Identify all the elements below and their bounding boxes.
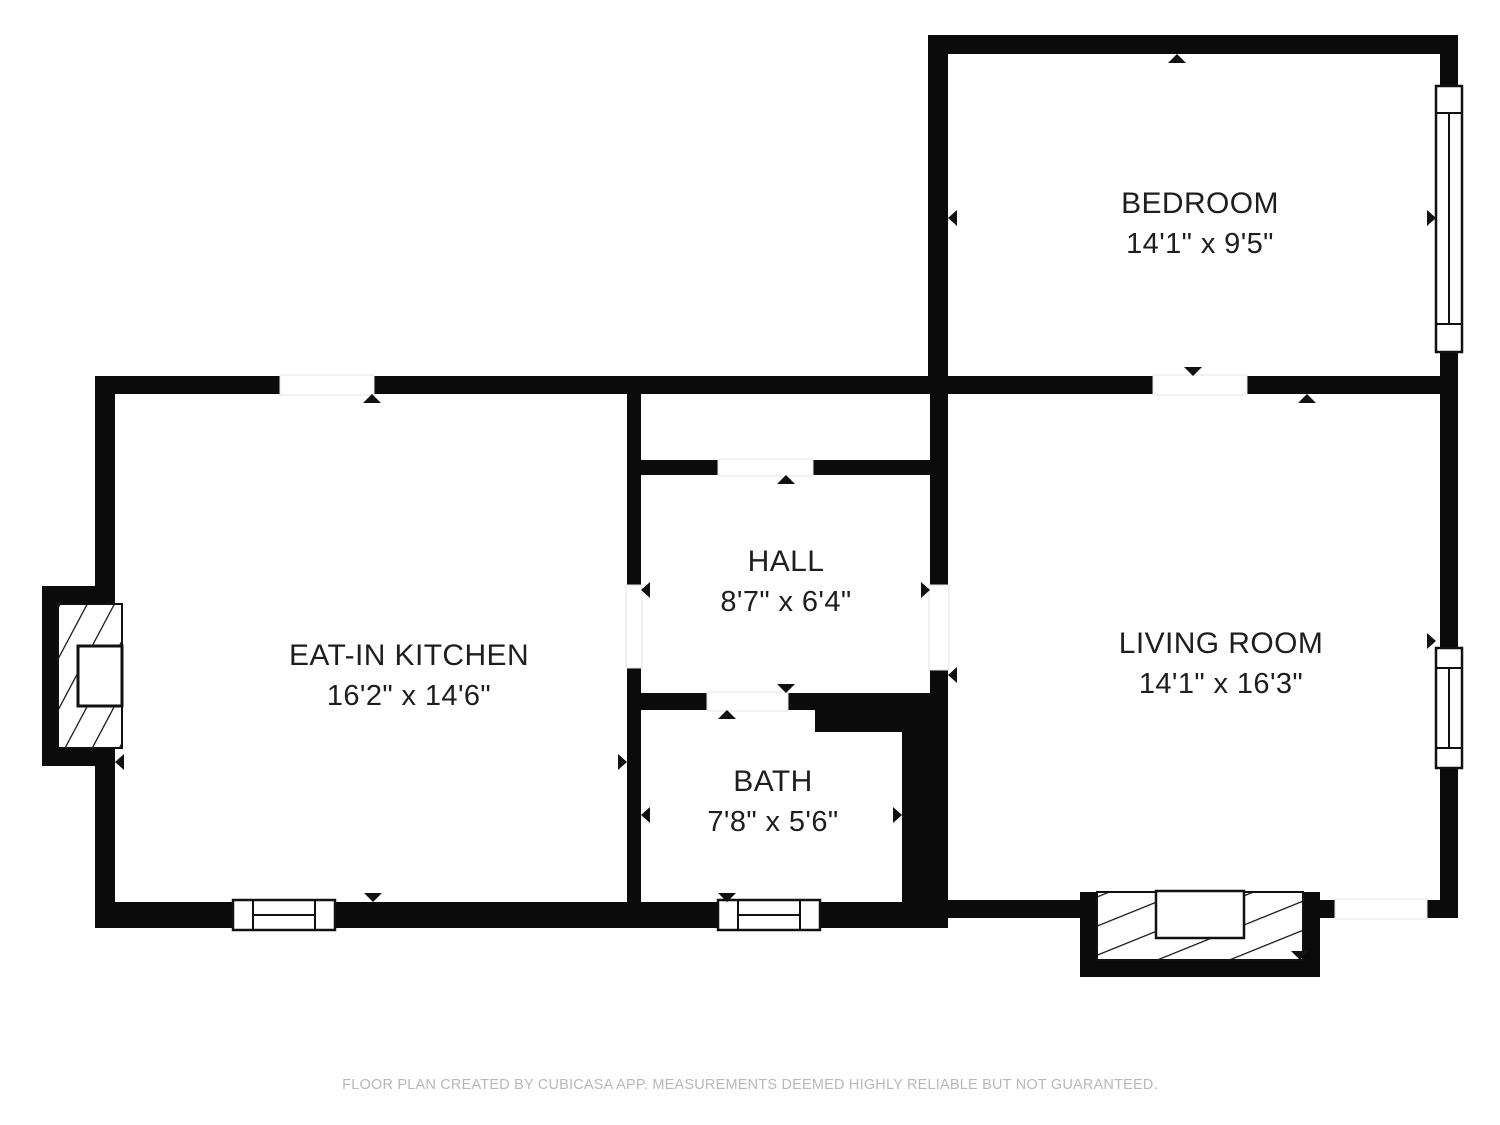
footer-disclaimer: FLOOR PLAN CREATED BY CUBICASA APP. MEAS… — [0, 1077, 1500, 1093]
room-label-eat-in-kitchen: EAT-IN KITCHEN 16'2" x 14'6" — [289, 636, 529, 716]
wall-hall-top — [627, 460, 718, 475]
wall-bedroom-left — [928, 35, 948, 394]
measure-arrow-icon — [893, 807, 902, 823]
room-dimensions: 8'7" x 6'4" — [720, 582, 851, 622]
room-label-living-room: LIVING ROOM 14'1" x 16'3" — [1119, 624, 1323, 704]
wall-hall-top — [813, 460, 948, 475]
room-name: LIVING ROOM — [1119, 624, 1323, 664]
measure-arrow-icon — [1168, 54, 1186, 63]
door-opening-hall-kitchen — [626, 585, 642, 668]
window-kitchen — [233, 900, 335, 930]
door-opening-closet — [718, 459, 813, 476]
measure-arrow-icon — [641, 807, 650, 823]
wall-kitchen-hall — [627, 394, 641, 585]
wall-main-horizontal — [95, 376, 280, 394]
floor-plan-page: BEDROOM 14'1" x 9'5" EAT-IN KITCHEN 16'2… — [0, 0, 1500, 1125]
measure-arrow-icon — [115, 754, 124, 770]
door-opening-hall-living — [929, 585, 949, 670]
wall-bath-living — [902, 710, 948, 928]
measure-arrow-icon — [1427, 633, 1436, 649]
wall-main-horizontal — [374, 376, 1153, 394]
wall-hall-bottom — [627, 693, 707, 710]
wall-living-bottom — [1427, 900, 1458, 918]
measure-arrow-icon — [1427, 210, 1436, 226]
window-living — [1436, 648, 1462, 768]
room-dimensions: 16'2" x 14'6" — [289, 676, 529, 716]
room-dimensions: 14'1" x 9'5" — [1121, 224, 1279, 264]
wall-hall-living — [930, 670, 948, 693]
wall-main-horizontal — [1247, 376, 1458, 394]
wall-chimney — [42, 586, 58, 766]
wall-hall-bottom — [788, 693, 948, 710]
wall-living-bottom — [902, 900, 1097, 918]
chimney-firebox — [78, 646, 122, 706]
door-opening-bedroom — [1153, 375, 1247, 395]
measure-arrow-icon — [948, 210, 957, 226]
door-opening-front — [1335, 899, 1427, 919]
room-label-bedroom: BEDROOM 14'1" x 9'5" — [1121, 184, 1279, 264]
wall-chimney — [42, 748, 115, 766]
wall-kitchen-left — [95, 394, 115, 588]
window-bedroom — [1436, 86, 1462, 352]
room-dimensions: 7'8" x 5'6" — [707, 802, 838, 842]
room-label-bath: BATH 7'8" x 5'6" — [707, 762, 838, 842]
door-opening-bath — [707, 692, 788, 711]
chimney — [58, 604, 122, 748]
room-label-hall: HALL 8'7" x 6'4" — [720, 542, 851, 622]
room-name: BEDROOM — [1121, 184, 1279, 224]
measure-arrow-icon — [364, 893, 382, 902]
wall-hall-living — [930, 394, 948, 585]
room-name: BATH — [707, 762, 838, 802]
room-name: EAT-IN KITCHEN — [289, 636, 529, 676]
entry-steps — [1097, 891, 1303, 960]
room-name: HALL — [720, 542, 851, 582]
door-opening-kitchen — [280, 375, 374, 395]
measure-arrow-icon — [618, 754, 627, 770]
room-dimensions: 14'1" x 16'3" — [1119, 664, 1323, 704]
wall-bedroom-top — [928, 35, 1458, 54]
window-bath — [718, 900, 820, 930]
measure-arrow-icon — [1298, 394, 1316, 403]
entry-landing — [1156, 891, 1244, 938]
